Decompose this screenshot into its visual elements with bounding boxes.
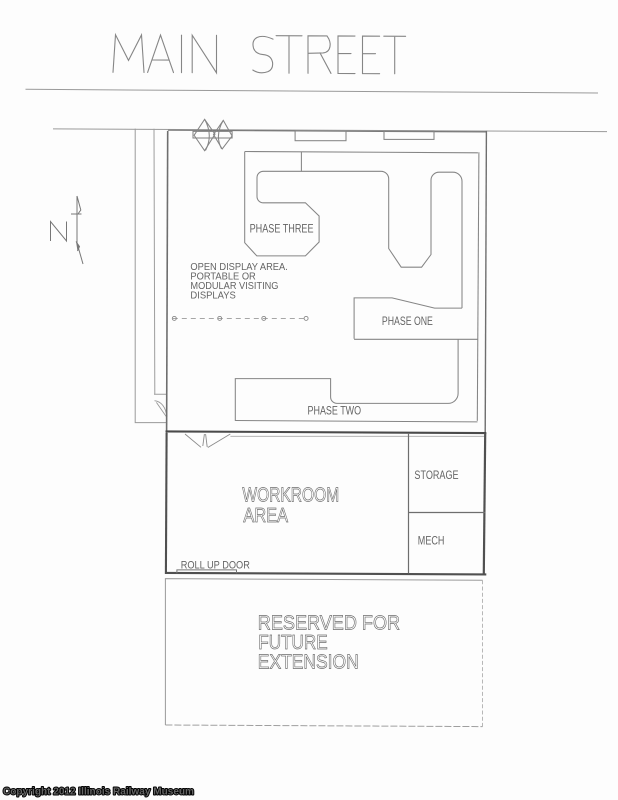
svg-text:DISPLAYS: DISPLAYS — [190, 290, 235, 301]
svg-text:EXTENSION: EXTENSION — [258, 651, 359, 673]
svg-text:Copyright 2012 Illinois Railwa: Copyright 2012 Illinois Railway Museum — [3, 787, 194, 798]
svg-text:MECH: MECH — [418, 535, 445, 548]
svg-text:AREA: AREA — [243, 505, 288, 527]
svg-text:STORAGE: STORAGE — [414, 469, 458, 482]
svg-text:WORKROOM: WORKROOM — [242, 485, 339, 507]
svg-text:PHASE THREE: PHASE THREE — [250, 222, 314, 235]
svg-text:PHASE TWO: PHASE TWO — [308, 405, 362, 418]
svg-text:PHASE ONE: PHASE ONE — [382, 315, 433, 328]
